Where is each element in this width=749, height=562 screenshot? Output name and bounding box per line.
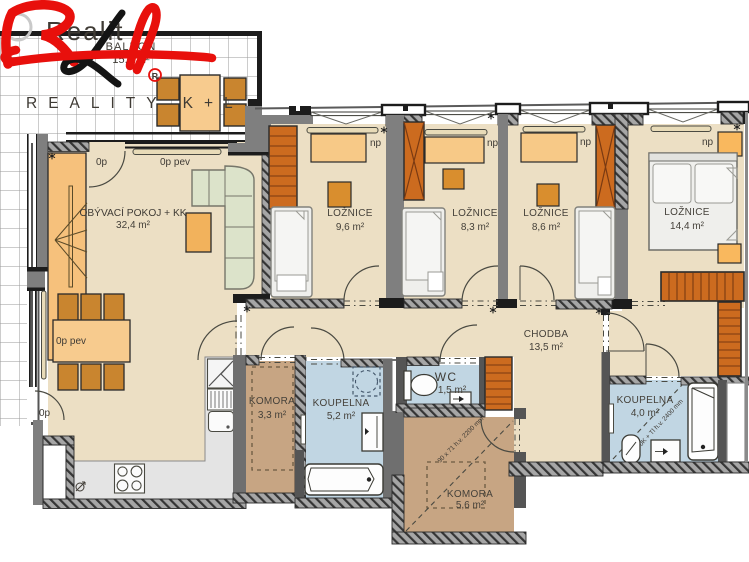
svg-text:3,3 m²: 3,3 m² (258, 410, 287, 421)
svg-text:np: np (702, 137, 714, 148)
svg-text:8,6 m²: 8,6 m² (532, 222, 561, 233)
svg-text:R: R (152, 71, 158, 81)
svg-text:0p: 0p (96, 157, 108, 168)
svg-text:REALITY K+L: REALITY K+L (26, 95, 244, 112)
svg-text:KOMORA: KOMORA (447, 489, 493, 500)
svg-text:np: np (370, 138, 382, 149)
svg-text:LOŽNICE: LOŽNICE (452, 206, 497, 219)
svg-text:LOŽNICE: LOŽNICE (327, 206, 372, 219)
svg-text:13,5 m²: 13,5 m² (529, 342, 564, 353)
svg-text:LOŽNICE: LOŽNICE (664, 205, 709, 218)
svg-text:0p: 0p (39, 408, 51, 419)
svg-text:CHODBA: CHODBA (524, 329, 569, 340)
svg-text:np: np (580, 137, 592, 148)
svg-text:0p pev: 0p pev (56, 336, 86, 347)
svg-text:4,0 m²: 4,0 m² (631, 408, 660, 419)
svg-text:np: np (487, 138, 499, 149)
svg-text:5,6 m²: 5,6 m² (456, 500, 485, 511)
svg-text:LOŽNICE: LOŽNICE (523, 206, 568, 219)
svg-text:9,6 m²: 9,6 m² (336, 222, 365, 233)
svg-text:14,4 m²: 14,4 m² (670, 221, 705, 232)
svg-text:32,4 m²: 32,4 m² (116, 220, 151, 231)
svg-text:0p pev: 0p pev (160, 157, 190, 168)
svg-text:5,2 m²: 5,2 m² (327, 411, 356, 422)
svg-text:KOUPELNA: KOUPELNA (313, 398, 370, 409)
svg-text:OBÝVACÍ POKOJ + KK: OBÝVACÍ POKOJ + KK (79, 206, 186, 219)
svg-text:8,3 m²: 8,3 m² (461, 222, 490, 233)
svg-text:WC: WC (435, 370, 457, 384)
svg-text:KOMORA: KOMORA (249, 396, 295, 407)
svg-text:KOUPELNA: KOUPELNA (617, 395, 674, 406)
svg-text:1,5 m²: 1,5 m² (438, 385, 467, 396)
